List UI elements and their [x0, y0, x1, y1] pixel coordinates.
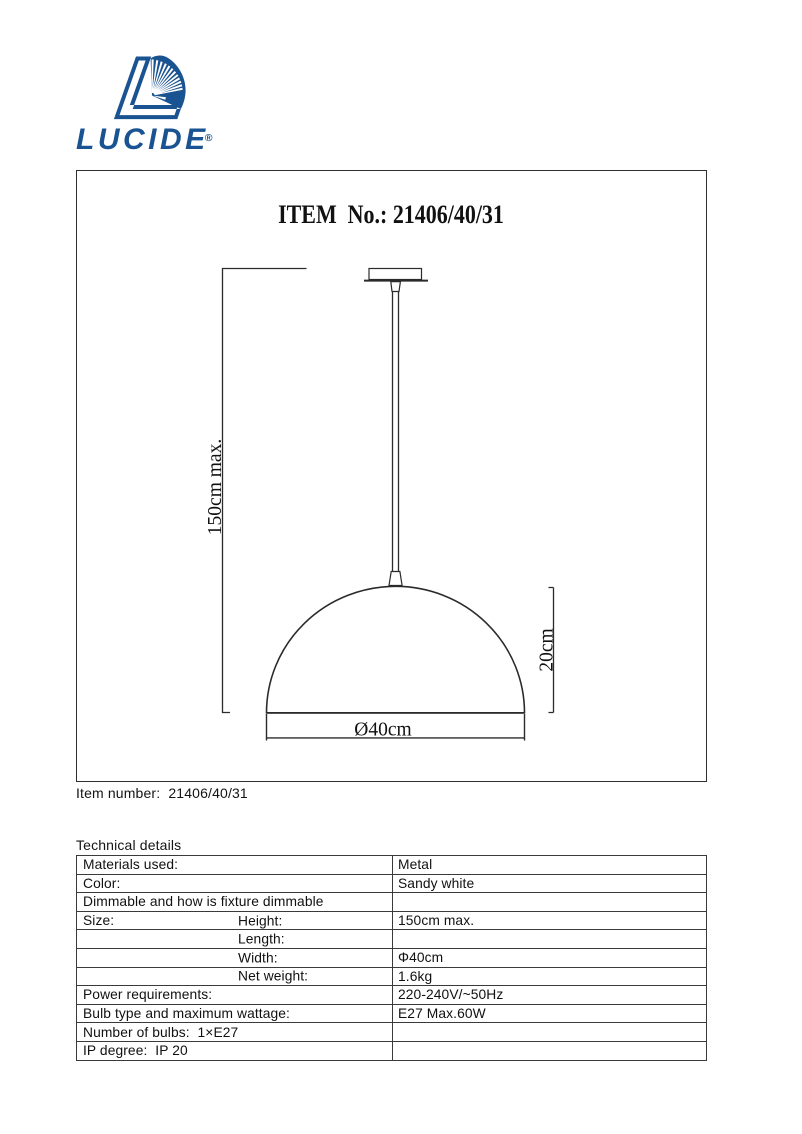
svg-text:150cm max.: 150cm max.: [205, 439, 226, 535]
svg-text:20cm: 20cm: [537, 628, 558, 671]
svg-text:Ø40cm: Ø40cm: [354, 720, 411, 741]
